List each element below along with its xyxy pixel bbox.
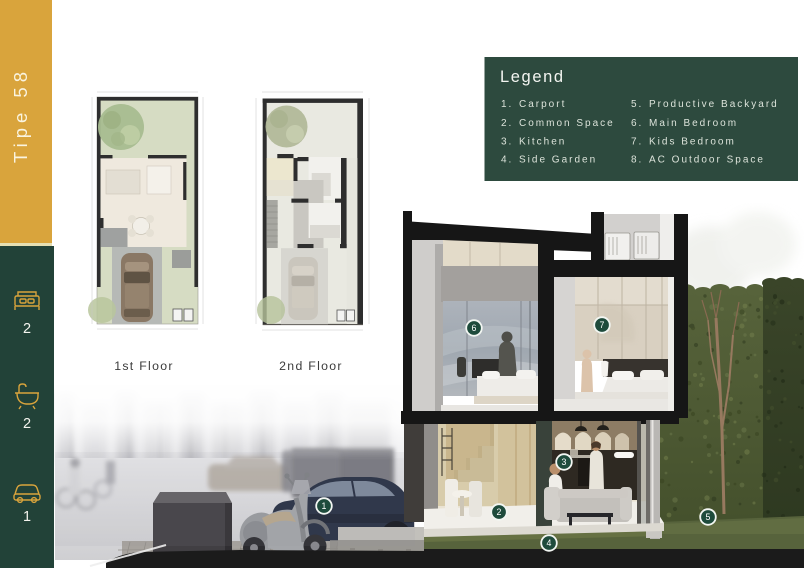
svg-text:3.: 3.	[501, 137, 513, 148]
svg-text:2: 2	[497, 507, 502, 517]
svg-text:5: 5	[706, 512, 711, 522]
svg-text:2nd Floor: 2nd Floor	[279, 359, 343, 373]
svg-text:Kitchen: Kitchen	[519, 137, 566, 148]
svg-text:1st Floor: 1st Floor	[114, 359, 174, 373]
svg-text:7: 7	[600, 320, 605, 330]
svg-text:4: 4	[547, 538, 552, 548]
svg-text:Side Garden: Side Garden	[519, 155, 597, 166]
svg-text:3: 3	[562, 457, 567, 467]
svg-text:4.: 4.	[501, 155, 513, 166]
svg-text:6: 6	[472, 323, 477, 333]
svg-text:6.: 6.	[631, 118, 643, 129]
svg-text:AC Outdoor Space: AC Outdoor Space	[649, 155, 765, 166]
svg-text:Kids Bedroom: Kids Bedroom	[649, 137, 736, 148]
svg-text:Productive Backyard: Productive Backyard	[649, 99, 779, 110]
svg-text:Common Space: Common Space	[519, 118, 615, 129]
svg-text:2: 2	[23, 321, 31, 337]
svg-text:2: 2	[23, 416, 31, 432]
svg-text:5.: 5.	[631, 99, 643, 110]
svg-text:1: 1	[322, 501, 327, 511]
svg-text:Legend: Legend	[500, 68, 565, 86]
svg-text:1: 1	[23, 509, 31, 525]
svg-text:Main Bedroom: Main Bedroom	[649, 118, 738, 129]
svg-text:8.: 8.	[631, 155, 643, 166]
svg-text:Tipe 58: Tipe 58	[10, 67, 31, 163]
svg-text:Carport: Carport	[519, 99, 566, 110]
svg-text:1.: 1.	[501, 99, 513, 110]
svg-text:2.: 2.	[501, 118, 513, 129]
svg-text:7.: 7.	[631, 137, 643, 148]
